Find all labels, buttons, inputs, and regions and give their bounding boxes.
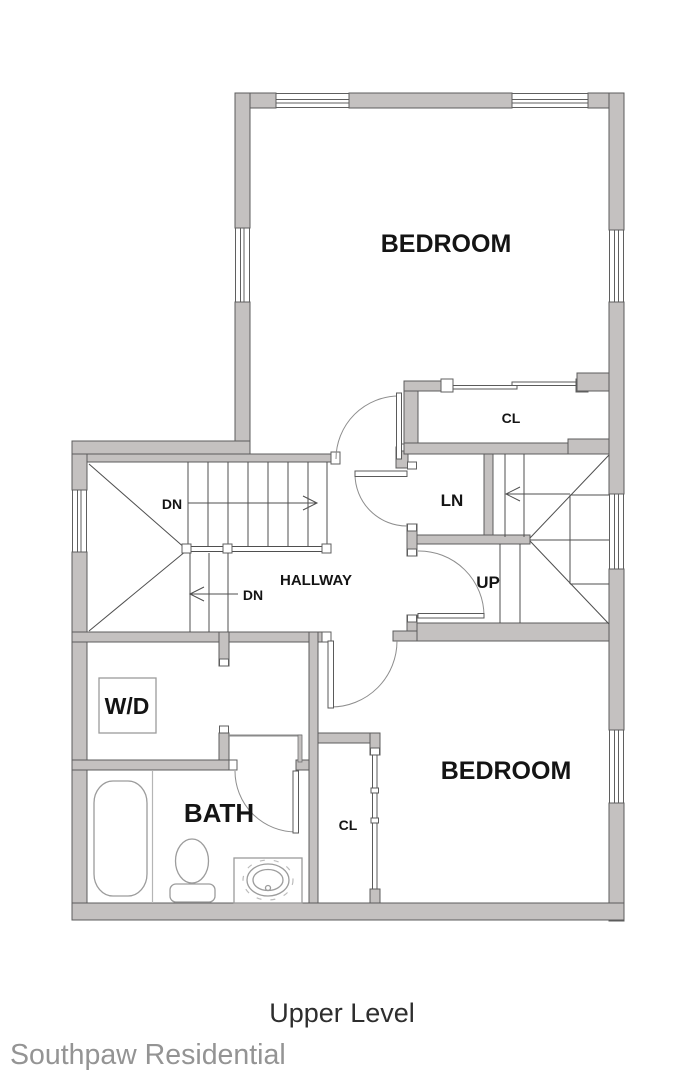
svg-text:CL: CL bbox=[339, 817, 358, 833]
svg-text:CL: CL bbox=[502, 410, 521, 426]
svg-text:BATH: BATH bbox=[184, 798, 254, 828]
svg-text:UP: UP bbox=[476, 573, 500, 592]
svg-text:Upper Level: Upper Level bbox=[269, 998, 415, 1028]
svg-text:DN: DN bbox=[162, 496, 182, 512]
svg-text:HALLWAY: HALLWAY bbox=[280, 572, 352, 589]
svg-text:BEDROOM: BEDROOM bbox=[381, 230, 512, 258]
svg-text:BEDROOM: BEDROOM bbox=[441, 757, 572, 785]
svg-text:Southpaw Residential: Southpaw Residential bbox=[10, 1039, 286, 1071]
svg-text:LN: LN bbox=[441, 491, 464, 510]
svg-text:W/D: W/D bbox=[105, 693, 150, 719]
svg-text:DN: DN bbox=[243, 587, 263, 603]
